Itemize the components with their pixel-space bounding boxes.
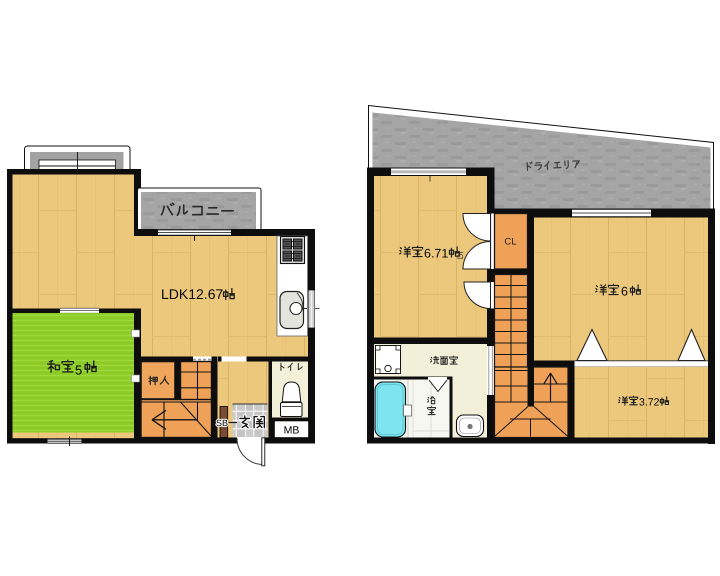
svg-text:SB: SB: [216, 418, 228, 428]
svg-text:6.71: 6.71: [424, 247, 448, 261]
svg-text:6: 6: [621, 285, 628, 299]
svg-text:MB: MB: [284, 425, 300, 437]
svg-text:LDK12.67: LDK12.67: [161, 286, 223, 302]
svg-text:3.72: 3.72: [639, 397, 660, 409]
svg-text:CL: CL: [504, 237, 516, 248]
svg-text:Dr: Dr: [456, 250, 465, 259]
svg-text:5: 5: [75, 363, 82, 378]
